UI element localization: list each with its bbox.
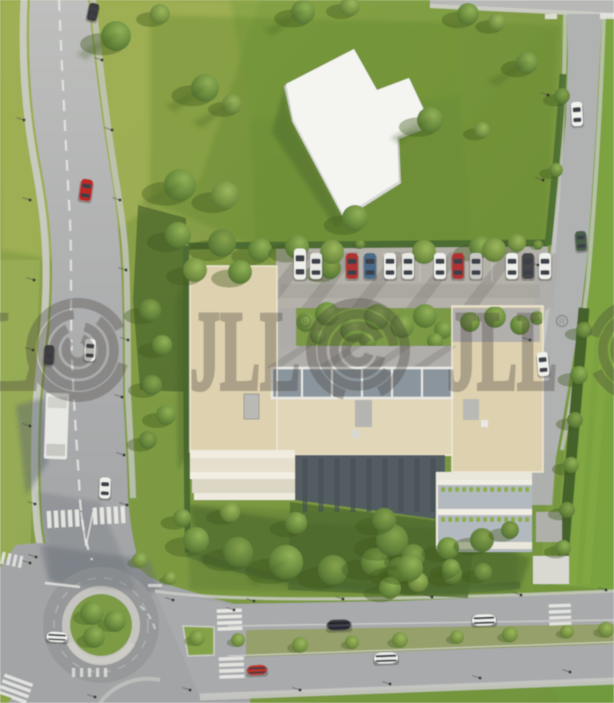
svg-text:R: R <box>559 318 565 327</box>
svg-text:R: R <box>302 318 308 327</box>
svg-text:JLL: JLL <box>190 289 300 414</box>
svg-text:JLL: JLL <box>447 289 557 414</box>
svg-text:L: L <box>0 289 41 414</box>
